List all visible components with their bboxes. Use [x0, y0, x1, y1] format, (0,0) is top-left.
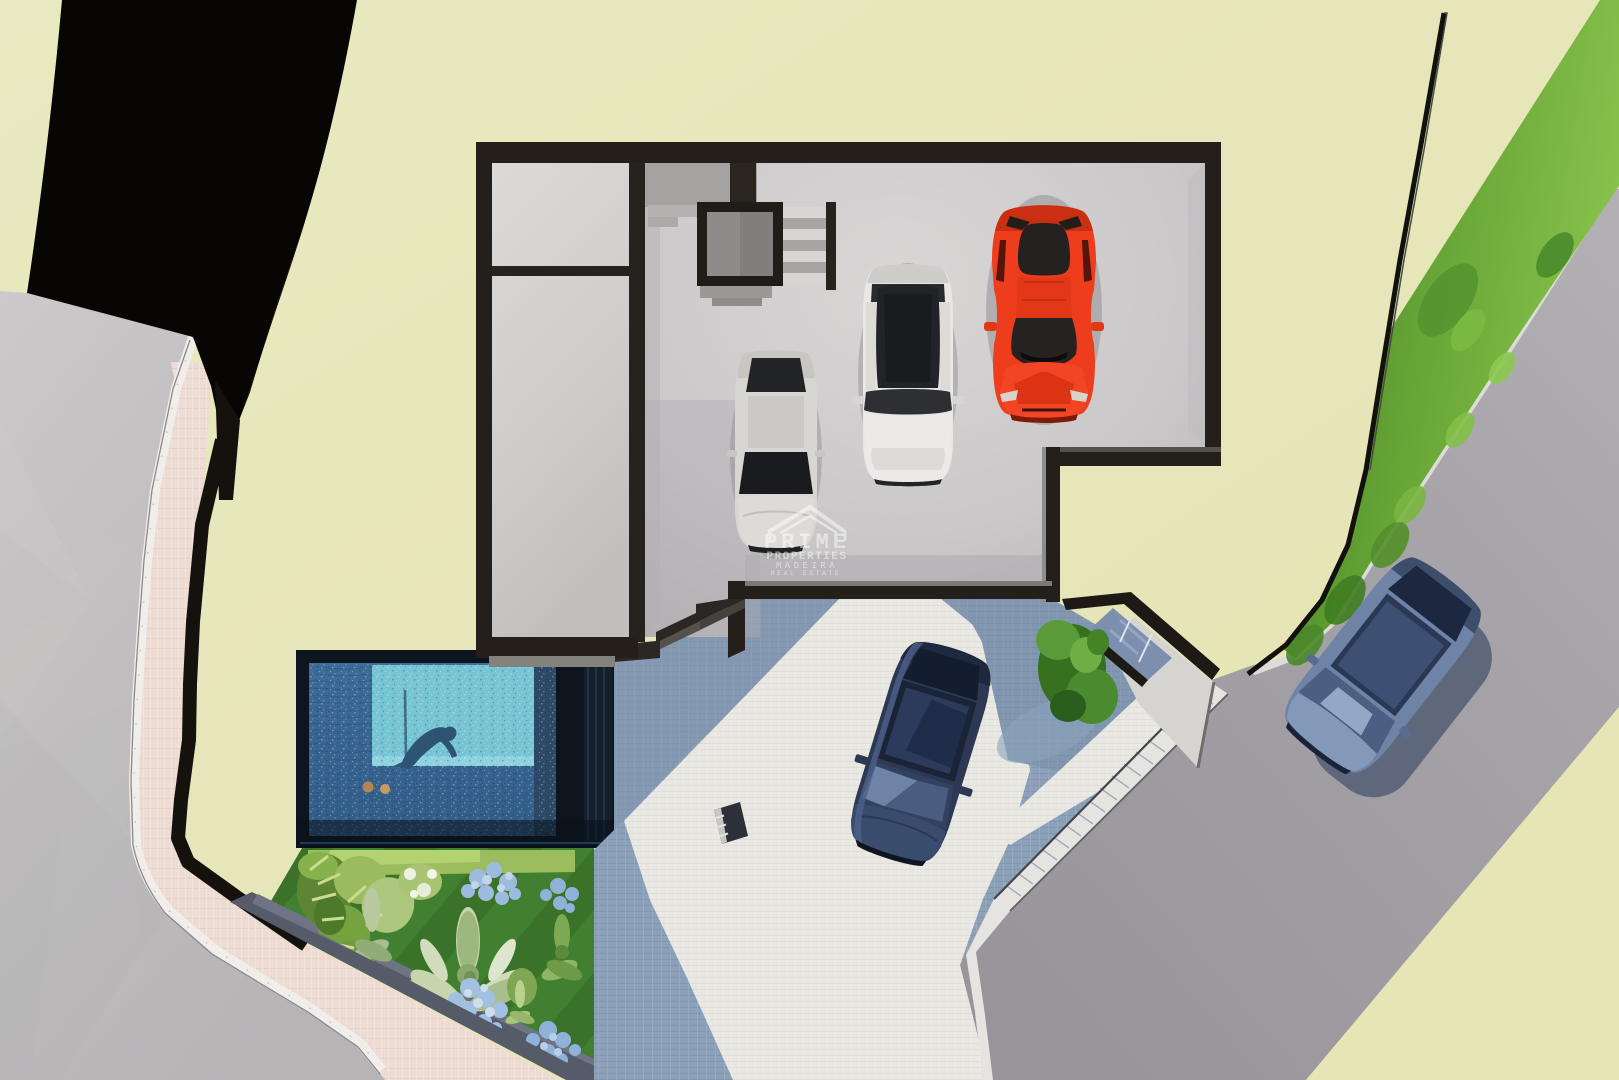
- svg-text:REAL ESTATE: REAL ESTATE: [771, 570, 841, 577]
